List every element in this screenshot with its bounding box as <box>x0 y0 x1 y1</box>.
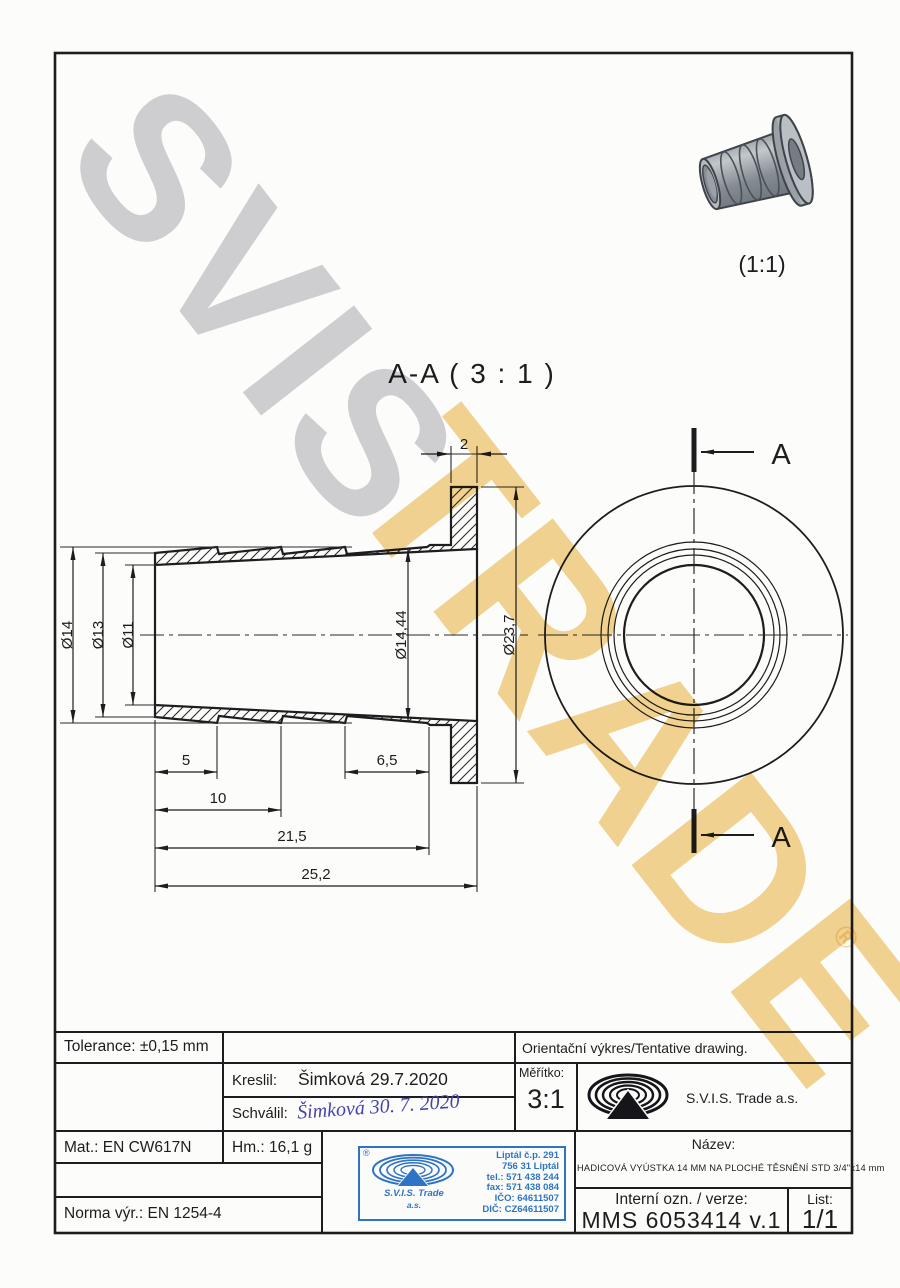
dim-label-d11: Ø11 <box>120 621 137 648</box>
part-3d-preview <box>690 112 819 230</box>
tentative-drawing-note: Orientační výkres/Tentative drawing. <box>522 1040 748 1056</box>
list-value: 1/1 <box>788 1204 852 1235</box>
kreslil-value: Šimková 29.7.2020 <box>298 1069 448 1090</box>
tolerance-field: Tolerance: ±0,15 mm <box>64 1038 209 1056</box>
dim-label-d237: Ø23,7 <box>501 615 518 656</box>
drawing-sheet: Ø14 Ø13 Ø11 Ø14,44 Ø23,7 2 5 6,5 10 21,5… <box>0 0 900 1288</box>
section-title: A-A ( 3 : 1 ) <box>388 358 556 389</box>
interni-value: MMS 6053414 v.1 <box>575 1207 788 1234</box>
company-stamp: ® S.V.I.S. Trade a.s. Liptál č.p. 291 75… <box>358 1146 566 1221</box>
stamp-company-line2: a.s. <box>368 1200 460 1210</box>
meritko-value: 3:1 <box>515 1084 577 1115</box>
meritko-label: Měřítko: <box>519 1066 564 1080</box>
dimension-lines <box>73 454 516 886</box>
front-view: A A <box>538 428 848 854</box>
dim-label-d1444: Ø14,44 <box>393 610 410 659</box>
dim-label-d14: Ø14 <box>59 621 76 649</box>
nazev-value: HADICOVÁ VYÚSTKA 14 MM NA PLOCHÉ TĚSNĚNÍ… <box>577 1163 850 1173</box>
stamp-address-line: 756 31 Liptál <box>461 1162 559 1173</box>
preview-scale-label: (1:1) <box>738 251 785 277</box>
kreslil-label: Kreslil: <box>232 1072 277 1089</box>
stamp-address-line: DIČ: CZ64611507 <box>461 1205 559 1216</box>
sheet-frame <box>55 53 852 1233</box>
dim-label-252: 25,2 <box>301 866 330 883</box>
stamp-logo-icon <box>370 1154 456 1188</box>
company-name: S.V.I.S. Trade a.s. <box>686 1090 798 1106</box>
stamp-address-block: Liptál č.p. 291 756 31 Liptál tel.: 571 … <box>461 1151 559 1216</box>
nazev-label: Název: <box>575 1136 852 1152</box>
stamp-company-line1: S.V.I.S. Trade <box>368 1188 460 1199</box>
company-logo <box>589 1075 667 1119</box>
norma-field: Norma výr.: EN 1254-4 <box>64 1205 222 1223</box>
dim-label-2: 2 <box>460 436 468 453</box>
dim-label-d13: Ø13 <box>90 621 107 649</box>
mass-field: Hm.: 16,1 g <box>232 1139 312 1157</box>
upper-wall-section <box>155 487 477 565</box>
cut-label-bottom: A <box>771 822 791 854</box>
cut-label-top: A <box>771 439 791 471</box>
schvalil-label: Schválil: <box>232 1105 288 1122</box>
dim-label-10: 10 <box>210 790 227 807</box>
stamp-registered-icon: ® <box>363 1148 370 1158</box>
dim-label-5: 5 <box>182 752 190 769</box>
material-field: Mat.: EN CW617N <box>64 1139 191 1157</box>
section-view: Ø14 Ø13 Ø11 Ø14,44 Ø23,7 2 5 6,5 10 21,5… <box>59 358 556 892</box>
dim-label-215: 21,5 <box>277 828 306 845</box>
dim-label-65: 6,5 <box>377 752 398 769</box>
